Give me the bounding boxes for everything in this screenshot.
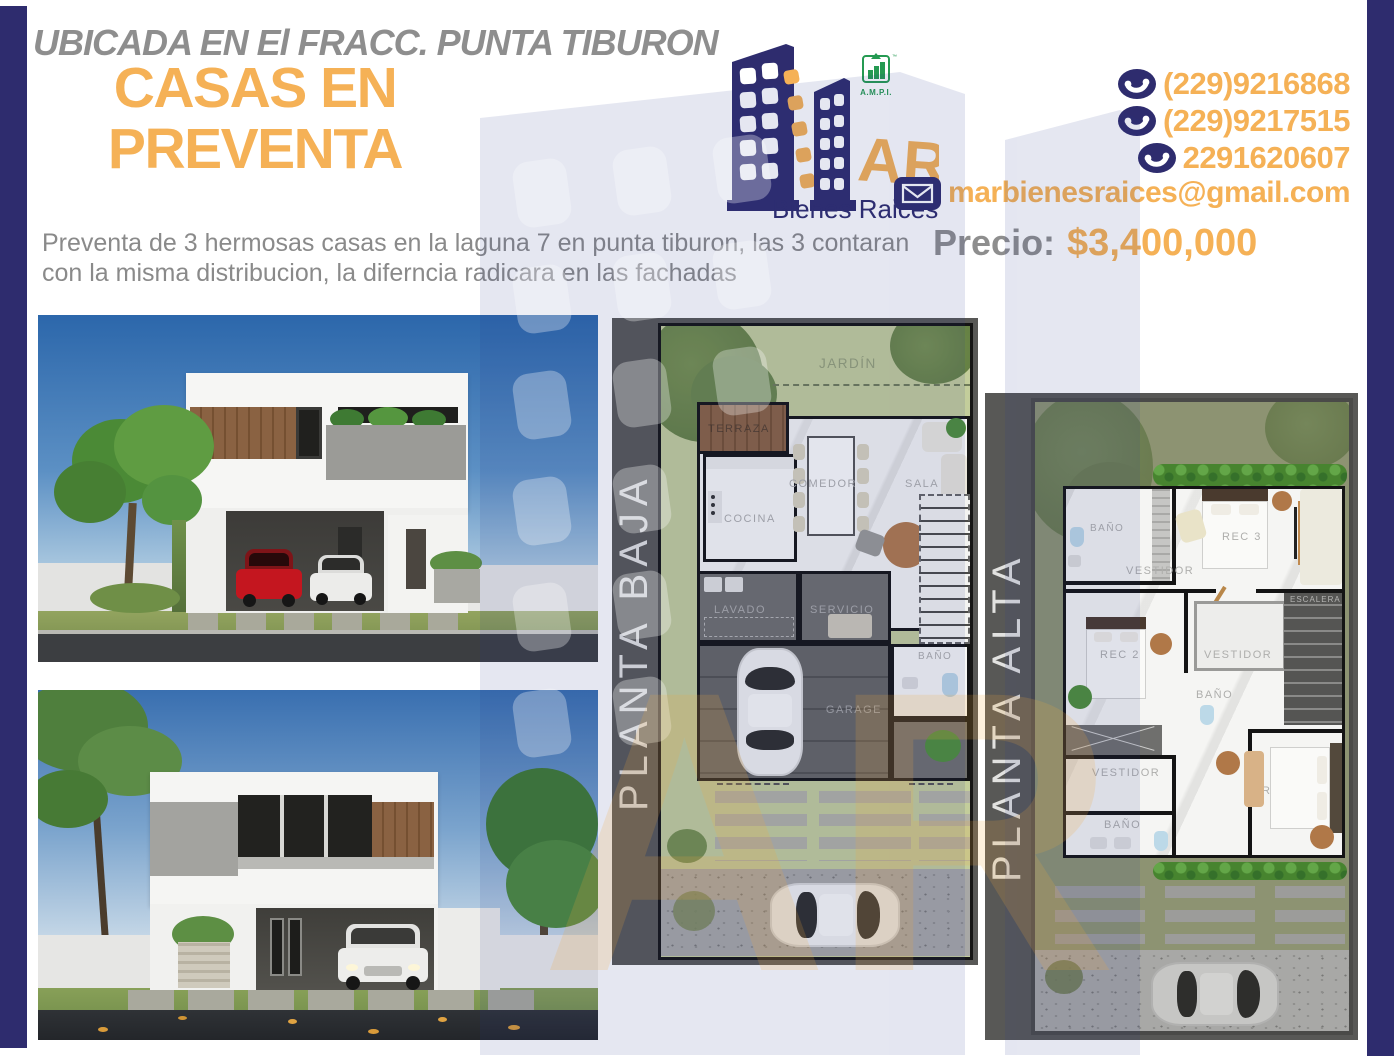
door-pane — [288, 918, 302, 976]
bottom-exterior-render — [38, 690, 598, 1040]
staircase-upper: ESCALERA — [1284, 593, 1342, 725]
stove — [708, 491, 722, 523]
toilet — [942, 673, 958, 697]
phone-row-3: 2291620607 — [1138, 140, 1350, 176]
pouf — [1216, 751, 1240, 775]
wood-facade-panel — [372, 802, 434, 857]
car-grill — [364, 966, 402, 976]
room-label-garage: GARAGE — [826, 704, 882, 716]
phone-number-3: 2291620607 — [1183, 140, 1350, 176]
chair — [857, 468, 869, 484]
car-rear-window — [796, 892, 817, 938]
burner — [711, 503, 715, 507]
paver-group — [919, 791, 970, 861]
room-label-vestidor2: VESTIDOR — [1204, 649, 1272, 661]
wall — [1248, 729, 1342, 733]
leaf — [438, 1017, 447, 1022]
bed-rec2 — [1086, 629, 1146, 699]
car-wheel — [316, 593, 328, 605]
parking-dash — [717, 783, 789, 785]
planta-baja-plan: JARDÍN TERRAZA COCINA COMEDOR SALA — [658, 323, 973, 960]
phone-number-1: (229)9216868 — [1163, 66, 1350, 102]
room-label-jardin: JARDÍN — [819, 356, 877, 371]
wall — [1066, 811, 1176, 815]
email-address: marbienesraices@gmail.com — [948, 176, 1350, 210]
car-windshield — [351, 928, 415, 944]
wall — [1184, 593, 1188, 673]
svg-text:™: ™ — [892, 54, 897, 60]
room-label-escalera-alta: ESCALERA — [1290, 595, 1341, 604]
burner — [711, 495, 715, 499]
side-table — [1272, 491, 1292, 511]
tree-foliage — [506, 840, 598, 928]
car-windshield — [249, 553, 289, 566]
phone-row-2: (229)9217515 — [1118, 103, 1350, 139]
plan-tree — [890, 323, 973, 384]
door-pane — [270, 918, 284, 976]
back-wall-right — [468, 565, 598, 617]
ampi-label: A.M.P.I. — [860, 88, 892, 97]
garage-car-top-view — [737, 648, 803, 776]
room-label-rec3: REC 3 — [1222, 531, 1262, 543]
street-bush — [673, 891, 715, 931]
plot-dashed-line — [773, 384, 970, 386]
description: Preventa de 3 hermosas casas en la lagun… — [42, 228, 909, 288]
staircase — [919, 494, 970, 644]
planta-alta-panel: PLANTA ALTA BAÑO REC 3 TV VESTIDOR — [985, 393, 1358, 1040]
bush — [90, 583, 180, 613]
indoor-plant — [946, 418, 966, 438]
planta-baja-panel: PLANTA BAJA JARDÍN TERRAZA COCINA C — [612, 318, 978, 965]
side-wall — [438, 908, 500, 990]
pillow — [1317, 756, 1327, 784]
lavado-room: LAVADO — [697, 571, 799, 643]
paver-group — [1165, 886, 1255, 944]
white-suv — [338, 924, 428, 990]
street-car-top-view — [1151, 962, 1279, 1026]
parking-dash — [909, 783, 953, 785]
phone-row-1: (229)9216868 — [1118, 66, 1350, 102]
side-patio — [891, 719, 970, 781]
pillow — [1094, 632, 1112, 642]
room-label-bano1: BAÑO — [1090, 523, 1124, 534]
entry-door — [406, 529, 426, 589]
paver-group — [715, 791, 807, 861]
interior-upper-floor: BAÑO REC 3 TV VESTIDOR REC 2 — [1063, 486, 1345, 858]
patio-plant — [925, 730, 961, 762]
top-exterior-render — [38, 315, 598, 662]
bench — [1244, 751, 1264, 807]
logo-building-short — [814, 78, 850, 202]
pillow — [1211, 504, 1231, 515]
leaf — [368, 1029, 379, 1034]
room-label-rec2: REC 2 — [1100, 649, 1140, 661]
car-wheel — [346, 976, 360, 990]
car-roof — [1200, 973, 1233, 1015]
balcony-slab — [238, 857, 434, 869]
street-car-top-view — [770, 883, 900, 947]
side-table — [1150, 633, 1172, 655]
front-lawn-strip — [661, 781, 970, 869]
tv-screen — [1294, 507, 1297, 559]
sink — [1114, 837, 1131, 849]
chair — [793, 516, 805, 532]
planta-baja-label-strip: PLANTA BAJA — [612, 318, 658, 965]
price-row: Precio: $3,400,000 — [933, 222, 1257, 265]
car-wheel — [282, 594, 295, 607]
toilet — [1154, 831, 1168, 851]
closet-x — [1066, 725, 1162, 755]
room-label-bano2: BAÑO — [1196, 689, 1233, 701]
planta-baja-label: PLANTA BAJA — [612, 318, 658, 965]
wall — [1066, 589, 1216, 593]
car-windshield — [322, 558, 360, 570]
pillow — [1239, 504, 1259, 515]
street-bush — [1045, 960, 1083, 994]
bed-rec-ppal — [1270, 747, 1330, 829]
price-amount: $3,400,000 — [1067, 222, 1257, 265]
concrete-band — [150, 802, 238, 876]
car-wheel — [243, 594, 256, 607]
email-row: marbienesraices@gmail.com — [894, 176, 1350, 210]
tree-foliage — [114, 405, 214, 487]
window-band — [238, 795, 372, 857]
paver-group — [1055, 886, 1145, 944]
room-label-lavado: LAVADO — [714, 604, 766, 616]
burner — [711, 511, 715, 515]
price-label: Precio: — [933, 222, 1055, 264]
room-label-terraza: TERRAZA — [708, 423, 770, 435]
closet-mark — [704, 617, 794, 637]
room-label-cocina: COCINA — [724, 513, 776, 525]
planter-box — [434, 569, 480, 603]
window-frame — [324, 795, 328, 857]
phone-icon — [1138, 143, 1176, 173]
left-border-bar — [0, 6, 27, 1048]
wall — [1066, 581, 1176, 585]
car-rear-window — [746, 730, 794, 750]
sofa-l — [1300, 489, 1342, 585]
pouf — [1310, 825, 1334, 849]
indoor-plant — [1068, 685, 1092, 709]
sink — [1068, 555, 1081, 567]
headboard — [1330, 743, 1342, 833]
leaf — [508, 1025, 520, 1030]
chair — [857, 444, 869, 460]
sink — [1090, 837, 1107, 849]
toilet — [1070, 527, 1084, 547]
title-line-2: PREVENTA — [105, 119, 405, 180]
car-wheel — [406, 976, 420, 990]
phone-icon — [1118, 106, 1156, 136]
leaf — [98, 1027, 108, 1032]
service-bed — [828, 614, 872, 638]
room-label-vestidor1: VESTIDOR — [1126, 565, 1194, 577]
pillow — [1120, 632, 1138, 642]
room-label-bano: BAÑO — [918, 651, 952, 662]
planta-alta-label: PLANTA ALTA — [985, 393, 1031, 1040]
room-label-vestidor3: VESTIDOR — [1092, 767, 1160, 779]
room-label-sala: SALA — [905, 478, 939, 490]
hedge-row — [1153, 464, 1347, 486]
planter-box — [178, 942, 230, 988]
plan-tree — [1265, 398, 1353, 468]
car-headlight — [408, 964, 420, 971]
window-frame — [280, 795, 284, 857]
wall — [1066, 755, 1176, 759]
hedge-row — [1153, 862, 1347, 880]
car-roof — [748, 694, 792, 727]
washer — [704, 577, 722, 592]
red-car — [236, 549, 302, 607]
pillow — [1317, 792, 1327, 820]
headboard — [1086, 617, 1146, 629]
bano-room: BAÑO — [891, 644, 970, 719]
back-wall-left — [38, 935, 150, 993]
email-icon — [894, 177, 941, 210]
headboard — [1202, 489, 1268, 501]
wall — [1172, 755, 1176, 855]
chair — [857, 492, 869, 508]
toilet — [1200, 705, 1214, 725]
sink — [902, 677, 918, 689]
description-line-2: con la misma distribucion, la diferncia … — [42, 258, 909, 288]
page-title: CASAS EN PREVENTA — [105, 58, 405, 180]
car-roof — [819, 894, 853, 936]
phone-number-2: (229)9217515 — [1163, 103, 1350, 139]
right-border-bar — [1367, 0, 1394, 1056]
concrete-planter-balcony — [326, 425, 466, 480]
upper-window — [296, 407, 322, 459]
phone-icon — [1118, 69, 1156, 99]
leaf — [178, 1016, 187, 1020]
ampi-logo-icon: ™ A.M.P.I. — [856, 50, 898, 104]
tree-foliage — [142, 475, 202, 525]
car-rear-window — [1177, 971, 1197, 1017]
title-line-1: CASAS EN — [105, 58, 405, 119]
chair — [793, 444, 805, 460]
description-line-1: Preventa de 3 hermosas casas en la lagun… — [42, 228, 909, 258]
servicio-room: SERVICIO — [799, 571, 891, 643]
terraza-area: TERRAZA — [697, 402, 789, 454]
chair — [793, 492, 805, 508]
paver-group — [819, 791, 911, 861]
room-label-comedor: COMEDOR — [789, 478, 857, 490]
planta-alta-plan: BAÑO REC 3 TV VESTIDOR REC 2 — [1031, 398, 1353, 1035]
paver-group — [1275, 886, 1345, 944]
room-label-bano3: BAÑO — [1104, 819, 1141, 831]
planta-alta-label-strip: PLANTA ALTA — [985, 393, 1031, 1040]
car-wheel — [354, 593, 366, 605]
white-car — [310, 555, 372, 607]
washer — [725, 577, 743, 592]
bush — [667, 829, 707, 863]
leaf — [288, 1019, 297, 1024]
kitchen-counter — [706, 457, 794, 469]
car-windshield — [745, 667, 795, 690]
car-headlight — [346, 964, 358, 971]
tree-foliage — [54, 461, 126, 523]
street — [38, 634, 598, 662]
cocina-room: COCINA — [703, 454, 797, 562]
